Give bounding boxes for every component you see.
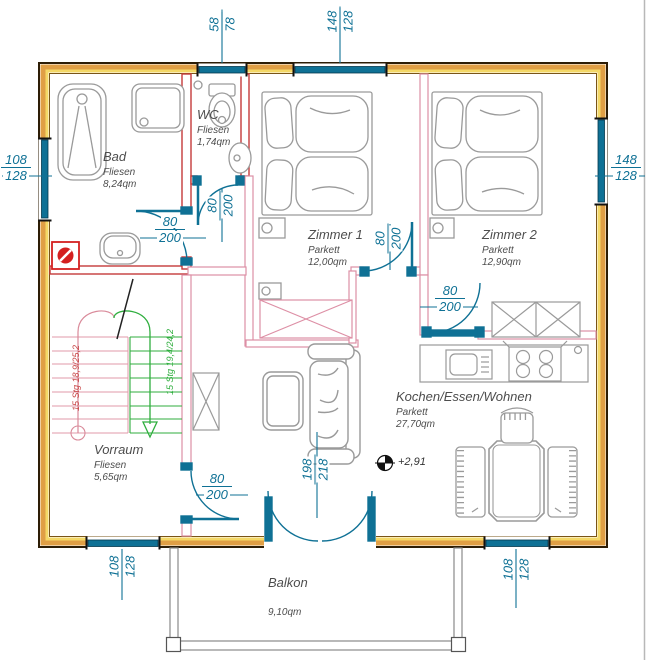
room-label-wohnen: Kochen/Essen/Wohnen Parkett 27,70qm [396, 388, 532, 430]
dim-window-left: 108128 [1, 153, 31, 182]
window-top-right [293, 64, 388, 77]
wardrobe-zimmer1 [260, 300, 352, 338]
dim-door-vorraum: 80200 [202, 472, 232, 501]
window-bottom-left [86, 537, 161, 550]
room-label-vorraum: Vorraum Fliesen 5,65qm [94, 441, 143, 483]
washing-machine [52, 242, 79, 269]
room-label-wc: WC Fliesen 1,74qm [197, 106, 230, 148]
room-label-zimmer2: Zimmer 2 Parkett 12,90qm [482, 226, 537, 268]
dim-window-bottom-right: 108128 [502, 555, 531, 585]
dim-window-right: 148128 [611, 153, 641, 182]
kitchen-counter [420, 341, 588, 382]
room-label-zimmer1: Zimmer 1 Parkett 12,00qm [308, 226, 363, 268]
window-right [595, 118, 608, 206]
stair-label-down: 15 Stg 19,4/24,2 [164, 306, 176, 418]
dim-door-zimmer2: 80200 [435, 284, 465, 313]
room-label-bad: Bad Fliesen 8,24qm [103, 148, 136, 190]
dim-door-wc: 80200 [206, 191, 235, 221]
dim-window-top-right: 148128 [326, 7, 355, 37]
wardrobe-vorraum [193, 373, 219, 430]
dim-door-bad: 80200 [155, 215, 185, 244]
stair-label-up: 15 Stg 18,9/25,2 [70, 322, 82, 434]
window-top-left [197, 64, 248, 77]
coffee-table [263, 372, 303, 430]
dim-door-zimmer1: 80200 [374, 224, 403, 254]
floor-plan: Bad Fliesen 8,24qm WC Fliesen 1,74qm Zim… [0, 0, 647, 660]
wardrobe-zimmer2 [492, 302, 580, 337]
window-left [39, 138, 52, 222]
elevation-label: +2,91 [398, 456, 426, 469]
dim-window-bottom-left: 108128 [108, 552, 137, 582]
dim-window-top-left: 5878 [208, 10, 237, 40]
floor-plan-drawing [0, 0, 647, 660]
room-label-balkon: Balkon 9,10qm [268, 574, 308, 619]
sofa [308, 344, 360, 464]
dim-door-balcony: 198218 [301, 455, 330, 485]
balcony-walls [167, 548, 466, 652]
window-bottom-right [484, 537, 551, 550]
